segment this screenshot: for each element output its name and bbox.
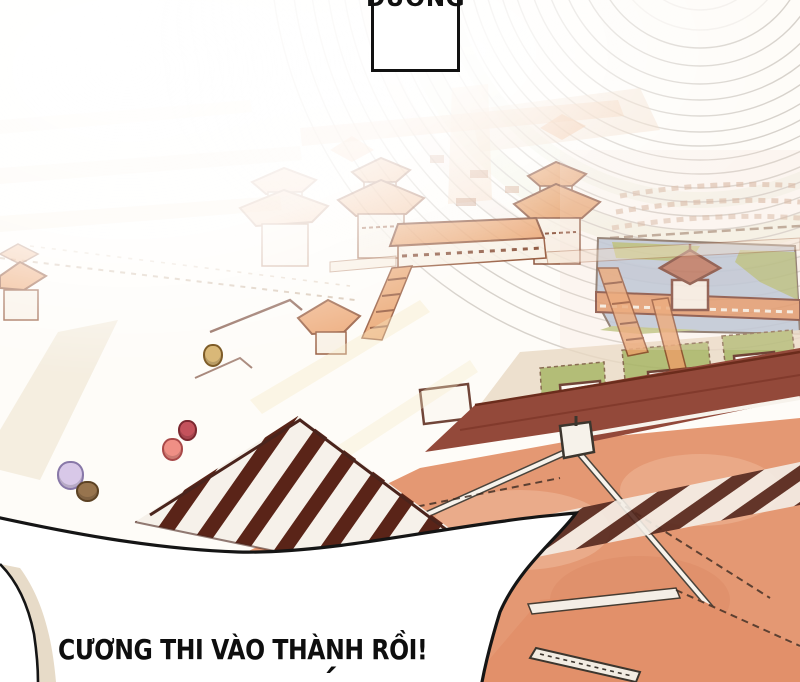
bottom-bubble-text: CƯƠNG THI VÀO THÀNH RỒI!	[58, 633, 427, 666]
top-speech-box: DƯƠNG	[371, 0, 460, 72]
comic-panel: DƯƠNG CƯƠNG THI VÀO THÀNH RỒI! ´	[0, 0, 800, 682]
bottom-bubble-second-line-fragment: ´	[320, 666, 338, 682]
scene-svg	[0, 0, 800, 682]
top-speech-text: DƯƠNG	[366, 0, 465, 12]
glow-wash-center	[150, 0, 800, 420]
